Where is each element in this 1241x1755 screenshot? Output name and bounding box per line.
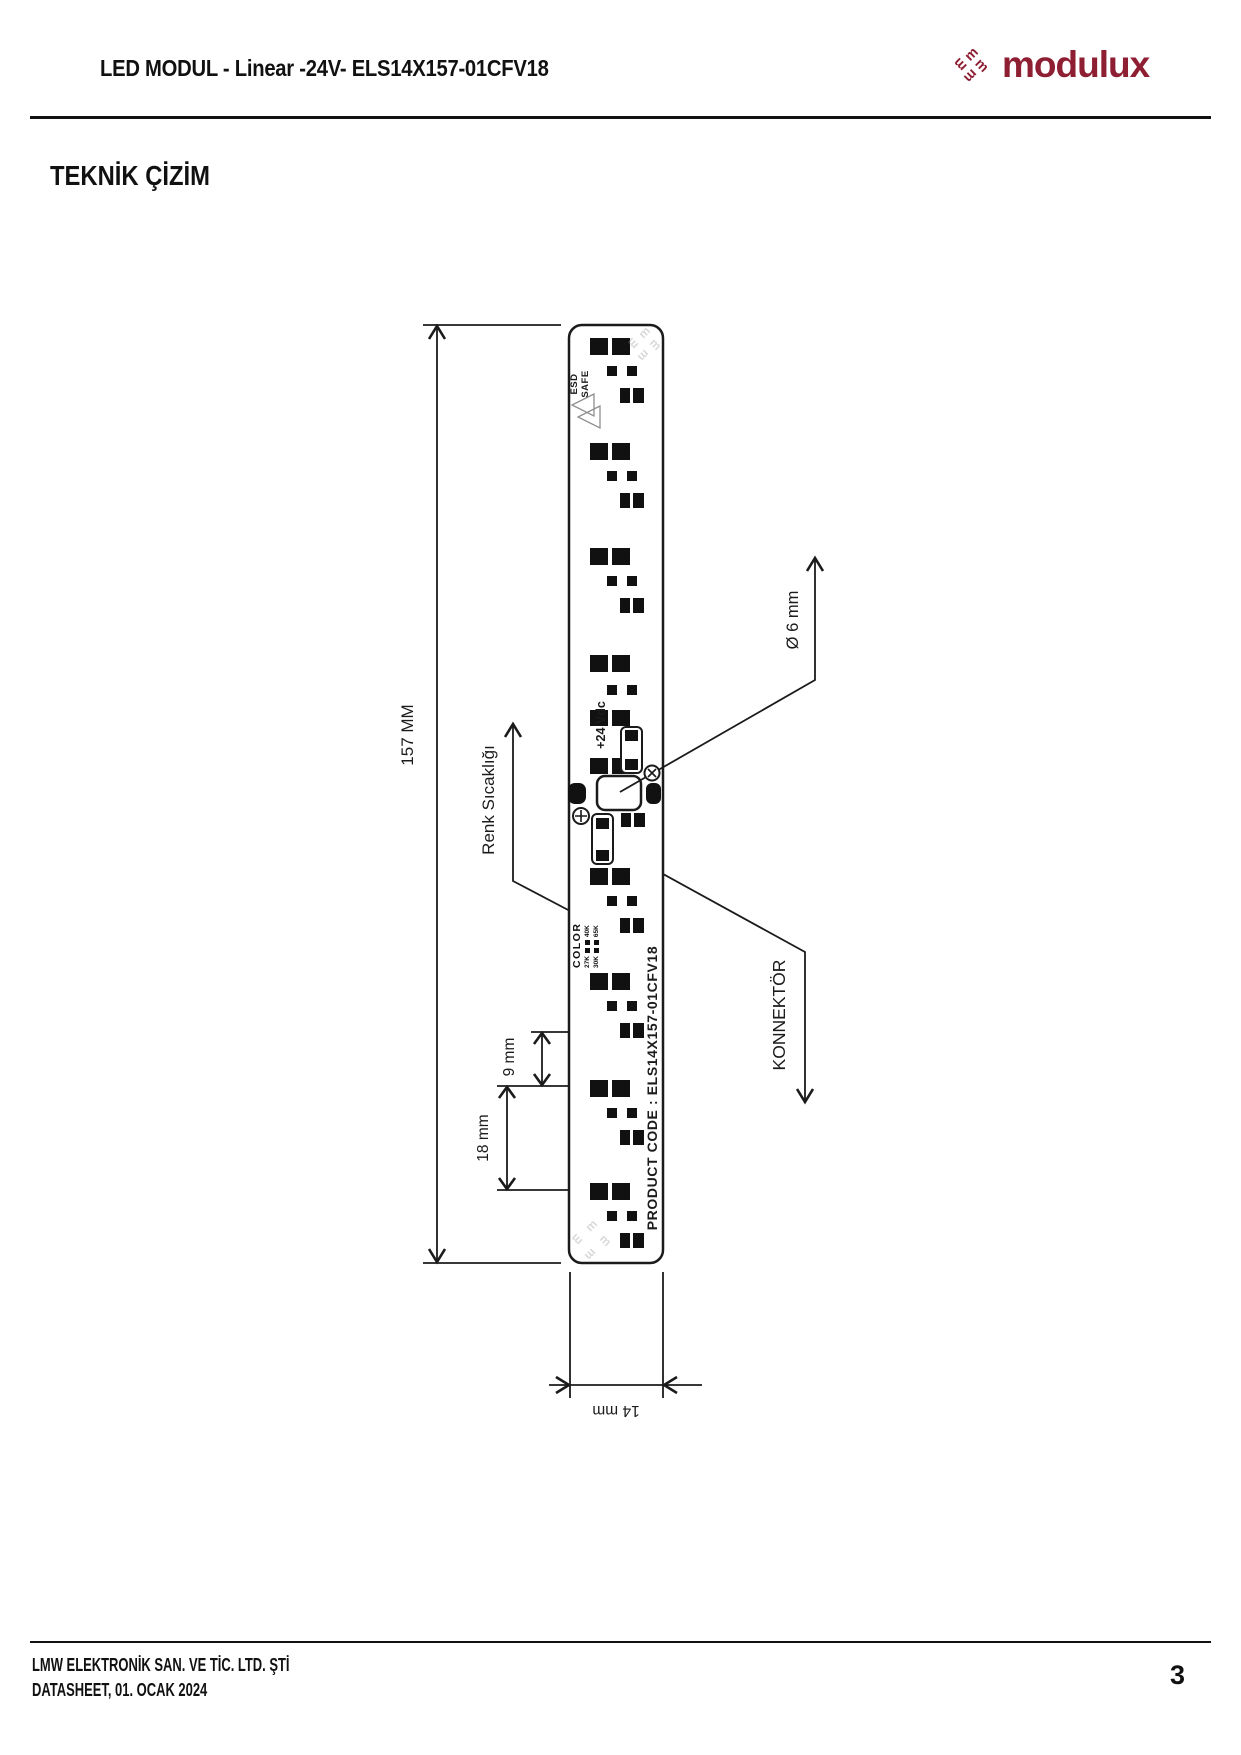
color-checkbox: [585, 940, 590, 945]
led-pad: [620, 1130, 630, 1145]
led-pad: [607, 1108, 617, 1118]
led-pad: [590, 1183, 608, 1200]
page: LED MODUL - Linear -24V- ELS14X157-01CFV…: [0, 0, 1241, 1755]
led-pad: [607, 366, 617, 376]
dim-length-label: 157 MM: [398, 690, 418, 780]
led-pad: [612, 1183, 630, 1200]
technical-drawing: [0, 0, 1241, 1500]
page-number: 3: [1170, 1660, 1185, 1691]
dim-width-label: 14 mm: [581, 1401, 651, 1419]
color-option: 30K: [592, 956, 601, 968]
led-pad: [627, 576, 637, 586]
led-pad: [627, 471, 637, 481]
brand-logo: m m m m modulux: [948, 42, 1149, 88]
brand-logo-icon: m m m m: [948, 42, 994, 88]
brand-wordmark: modulux: [1002, 42, 1149, 88]
led-pad: [620, 1233, 630, 1248]
dim-18mm-label: 18 mm: [475, 1106, 493, 1170]
led-pad: [620, 598, 630, 613]
smd-component: [621, 727, 642, 773]
voltage-silkscreen-label: +24 Vdc: [594, 696, 608, 754]
led-pad: [612, 443, 630, 460]
led-pad: [627, 366, 637, 376]
led-pad: [612, 1080, 630, 1097]
led-pad: [590, 443, 608, 460]
led-pad: [612, 548, 630, 565]
led-pad: [590, 973, 608, 990]
color-checkbox: [594, 940, 599, 945]
led-pad: [620, 918, 630, 933]
header-divider: [30, 116, 1211, 119]
led-pad: [612, 973, 630, 990]
section-title: TEKNİK ÇİZİM: [50, 160, 210, 192]
watermark-logo: mmmm: [627, 327, 661, 361]
led-pad: [627, 1211, 637, 1221]
footer-datasheet-date: DATASHEET, 01. OCAK 2024: [32, 1680, 207, 1701]
footer-company: LMW ELEKTRONİK SAN. VE TİC. LTD. ŞTİ: [32, 1655, 290, 1676]
led-pad: [633, 918, 644, 933]
connector: [568, 776, 661, 810]
led-pads: [590, 338, 644, 1248]
dim-9mm-label: 9 mm: [501, 1030, 519, 1084]
color-temp-callout-label: Renk Sıcaklığı: [478, 715, 500, 885]
mounting-hole: [645, 766, 660, 781]
watermark-logo: mmmm: [570, 1219, 612, 1261]
led-pad: [627, 896, 637, 906]
led-pad: [633, 493, 644, 508]
color-title: COLOR: [571, 923, 583, 968]
led-pad: [633, 1233, 644, 1248]
led-pad: [612, 868, 630, 885]
footer-divider: [30, 1641, 1211, 1643]
led-pad: [590, 338, 608, 355]
document-title: LED MODUL - Linear -24V- ELS14X157-01CFV…: [100, 55, 549, 82]
color-checkbox: [594, 948, 599, 953]
led-pad: [590, 1080, 608, 1097]
color-option: 27K: [583, 956, 592, 968]
led-pad: [633, 388, 644, 403]
led-pad: [627, 1108, 637, 1118]
esd-line1: ESD: [569, 373, 580, 394]
product-code-silkscreen: PRODUCT CODE : ELS14X157-01CFV18: [644, 914, 660, 1262]
smd-component: [592, 814, 613, 864]
led-pad: [633, 1130, 644, 1145]
color-option: 65K: [592, 925, 601, 937]
esd-safe-silkscreen: ESD SAFE: [568, 365, 592, 403]
hole-diameter-label: Ø 6 mm: [783, 578, 803, 662]
led-pad: [590, 548, 608, 565]
led-pad: [620, 1023, 630, 1038]
color-selection-silkscreen: COLOR 27K 40K 30K 65K: [571, 896, 617, 968]
connector-callout-label: KONNEKTÖR: [768, 940, 790, 1090]
color-row: 27K 40K: [583, 925, 592, 968]
led-pad: [633, 598, 644, 613]
led-pad: [607, 1001, 617, 1011]
color-row: 30K 65K: [592, 925, 601, 968]
led-pad: [607, 471, 617, 481]
led-pad: [620, 493, 630, 508]
color-option: 40K: [583, 925, 592, 937]
led-pad: [633, 1023, 644, 1038]
led-pad: [620, 388, 630, 403]
led-pad: [627, 1001, 637, 1011]
color-checkbox: [585, 948, 590, 953]
mounting-hole: [573, 808, 589, 824]
led-pad: [607, 576, 617, 586]
esd-line2: SAFE: [580, 370, 591, 397]
led-pad: [590, 868, 608, 885]
